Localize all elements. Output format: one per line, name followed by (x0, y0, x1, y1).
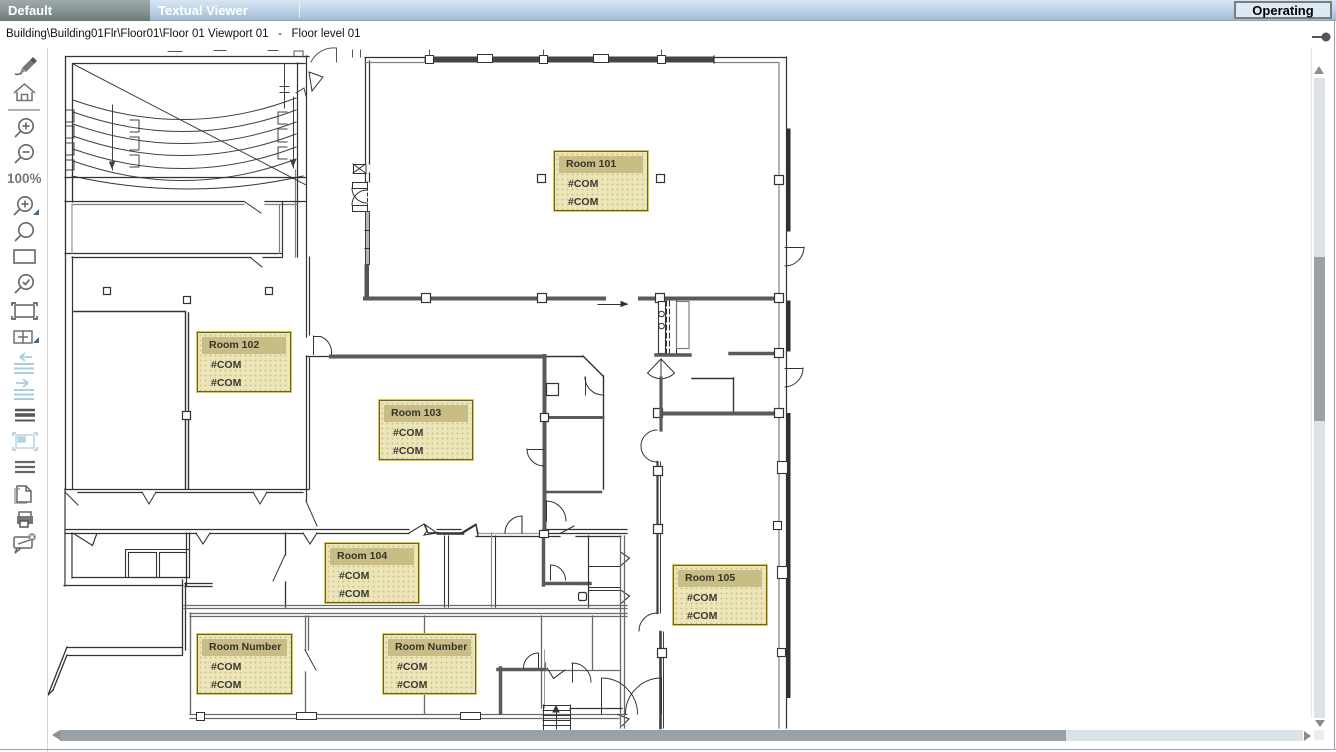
svg-text:100%: 100% (7, 171, 42, 186)
